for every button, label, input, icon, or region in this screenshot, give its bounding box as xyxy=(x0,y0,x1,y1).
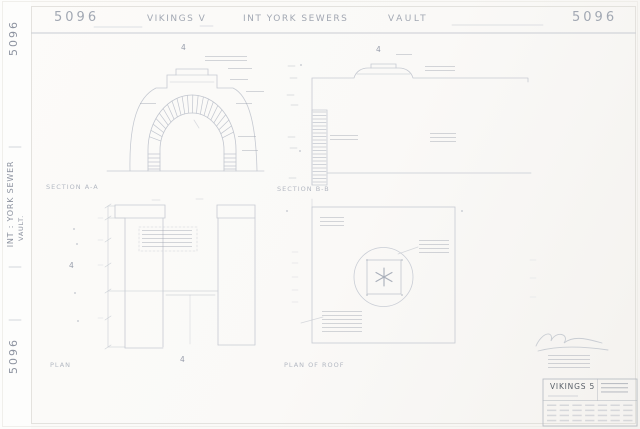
header-production: VIKINGS V xyxy=(147,14,206,24)
pencil-speck xyxy=(401,294,403,296)
pencil-note-scribble xyxy=(430,133,456,142)
pencil-note-scribble xyxy=(548,355,590,368)
grid-marker-section-b: 4 xyxy=(376,45,381,54)
pencil-note-scribble xyxy=(205,56,247,61)
header-subject: VAULT xyxy=(388,14,428,24)
pencil-note-scribble xyxy=(242,150,258,153)
pencil-note-scribble xyxy=(246,91,264,95)
pencil-speck xyxy=(401,259,403,261)
plan-right-label: PLAN OF ROOF xyxy=(284,361,344,369)
pencil-note-scribble xyxy=(142,230,192,248)
pencil-speck xyxy=(73,228,75,230)
margin-number-top: 5096 xyxy=(7,16,21,60)
grate-asterisk-icon xyxy=(376,268,392,286)
grid-marker-plan-bottom: 4 xyxy=(180,355,185,364)
drawing-sheet: 5096 VIKINGS V INT YORK SEWERS VAULT 509… xyxy=(0,0,640,429)
pencil-note-scribble xyxy=(238,136,256,140)
section-a-label: SECTION A-A xyxy=(46,183,99,191)
pencil-note-scribble xyxy=(230,79,248,82)
pencil-speck xyxy=(74,292,76,294)
margin-subtitle: VAULT. xyxy=(17,206,27,250)
section-b-label: SECTION B-B xyxy=(277,185,330,193)
pencil-note-scribble xyxy=(236,103,252,106)
pencil-speck xyxy=(76,243,78,245)
header-scene: INT YORK SEWERS xyxy=(243,14,348,24)
pencil-speck xyxy=(366,259,368,261)
pencil-note-scribble xyxy=(396,54,412,58)
signature xyxy=(536,334,608,351)
section-a-arch xyxy=(107,69,264,171)
pencil-speck xyxy=(299,150,301,152)
pencil-speck xyxy=(300,64,302,66)
pencil-speck xyxy=(286,210,288,212)
header-number-right: 5096 xyxy=(572,10,617,25)
grid-marker-section-a: 4 xyxy=(181,43,186,52)
plan-left-corridor xyxy=(108,199,255,348)
pencil-note-scribble xyxy=(322,311,362,332)
pencil-note-scribble xyxy=(330,135,358,141)
margin-number-bottom: 5096 xyxy=(7,334,21,378)
plan-left-label: PLAN xyxy=(50,361,71,369)
title-block-production: VIKINGS 5 xyxy=(550,382,595,391)
grid-marker-plan-left: 4 xyxy=(69,261,74,270)
pencil-speck xyxy=(366,294,368,296)
pencil-note-scribble xyxy=(228,68,252,72)
pencil-note-scribble xyxy=(425,66,455,74)
pencil-note-scribble xyxy=(419,240,449,254)
pencil-speck xyxy=(77,320,79,322)
pencil-note-scribble xyxy=(140,103,156,107)
header-number-left: 5096 xyxy=(54,10,99,25)
section-b-wall xyxy=(312,64,531,185)
pencil-note-scribble xyxy=(320,217,344,227)
pencil-speck xyxy=(461,210,463,212)
